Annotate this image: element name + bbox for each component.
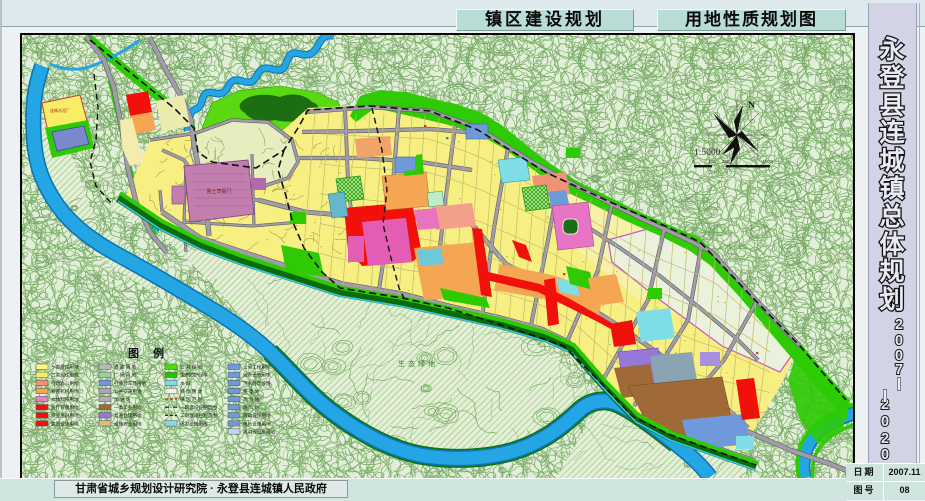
svg-text:体: 体 xyxy=(879,231,905,259)
svg-text:400m: 400m xyxy=(762,159,774,164)
svg-text:镇 区 范 围: 镇 区 范 围 xyxy=(180,396,203,403)
svg-text:文体科技用地: 文体科技用地 xyxy=(51,396,79,403)
svg-text:医疗保健用地: 医疗保健用地 xyxy=(51,404,79,411)
svg-text:2: 2 xyxy=(881,431,889,447)
svg-text:城: 城 xyxy=(879,147,904,175)
svg-text:规: 规 xyxy=(879,258,904,286)
svg-text:普通仓储用地: 普通仓储用地 xyxy=(114,412,142,419)
svg-text:教育机构用地: 教育机构用地 xyxy=(51,388,79,395)
svg-text:生产防护绿地: 生产防护绿地 xyxy=(180,372,208,379)
svg-text:鲁土司衙门: 鲁土司衙门 xyxy=(206,188,231,195)
svg-text:登: 登 xyxy=(878,63,905,92)
svg-text:0: 0 xyxy=(895,333,903,349)
svg-text:电信设施用地: 电信设施用地 xyxy=(243,420,271,427)
svg-text:总: 总 xyxy=(879,203,904,231)
svg-text:连: 连 xyxy=(879,119,905,147)
svg-text:2: 2 xyxy=(895,317,903,333)
svg-text:二类居住用地: 二类居住用地 xyxy=(51,372,79,379)
svg-text:生态绿地: 生态绿地 xyxy=(398,359,438,368)
svg-text:0: 0 xyxy=(881,447,889,463)
svg-text:给水设施用地: 给水设施用地 xyxy=(243,372,271,379)
svg-text:商业金融用地: 商业金融用地 xyxy=(51,412,79,419)
svg-text:邮政设施用地: 邮政设施用地 xyxy=(243,412,271,419)
svg-text:加 油 站: 加 油 站 xyxy=(114,396,131,403)
svg-text:一类工业用地: 一类工业用地 xyxy=(114,404,142,411)
svg-text:变 电 站: 变 电 站 xyxy=(243,388,260,395)
svg-text:公 共 绿 地: 公 共 绿 地 xyxy=(180,364,203,371)
svg-text:环卫设施用地: 环卫设施用地 xyxy=(180,420,208,427)
svg-text:社会停车场用地: 社会停车场用地 xyxy=(114,380,147,387)
svg-text:7: 7 xyxy=(895,362,903,378)
svg-text:镇: 镇 xyxy=(879,175,904,203)
svg-text:集贸设施用地: 集贸设施用地 xyxy=(51,420,79,427)
svg-text:1:5000: 1:5000 xyxy=(694,148,721,158)
svg-text:燃 气 站: 燃 气 站 xyxy=(243,404,260,411)
svg-text:污水处理设施: 污水处理设施 xyxy=(243,380,271,387)
svg-text:连城水泥厂: 连城水泥厂 xyxy=(50,107,70,113)
svg-text:一期建设控制范围: 一期建设控制范围 xyxy=(180,404,217,411)
svg-text:广 场 用 地: 广 场 用 地 xyxy=(114,372,137,379)
svg-text:永: 永 xyxy=(879,36,904,64)
svg-text:公用工程用地: 公用工程用地 xyxy=(243,364,271,371)
svg-text:N: N xyxy=(748,101,755,111)
svg-text:道 路 用 地: 道 路 用 地 xyxy=(114,364,137,371)
svg-text:200: 200 xyxy=(722,159,730,164)
svg-text:图例: 图例 xyxy=(128,346,178,360)
svg-text:划: 划 xyxy=(879,286,904,314)
svg-text:公共交通用地: 公共交通用地 xyxy=(114,388,142,395)
svg-text:二期建设控制范围: 二期建设控制范围 xyxy=(180,412,217,419)
svg-text:行政办公用地: 行政办公用地 xyxy=(51,380,79,387)
svg-text:水 域: 水 域 xyxy=(180,380,191,386)
svg-text:预 留 用 地: 预 留 用 地 xyxy=(180,388,203,395)
svg-text:100: 100 xyxy=(708,159,716,164)
svg-text:设施农业用地: 设施农业用地 xyxy=(114,420,142,427)
svg-text:0: 0 xyxy=(881,414,889,430)
svg-text:县: 县 xyxy=(879,92,904,120)
svg-text:防洪堤设施用地: 防洪堤设施用地 xyxy=(243,428,276,435)
svg-text:热 力 站: 热 力 站 xyxy=(243,396,260,403)
svg-text:一类居住用地: 一类居住用地 xyxy=(51,364,79,371)
